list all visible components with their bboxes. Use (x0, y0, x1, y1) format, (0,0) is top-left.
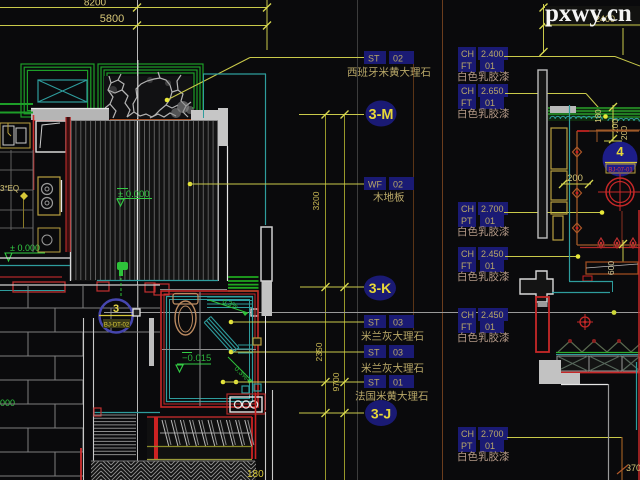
svg-text:01: 01 (485, 441, 495, 451)
svg-text:3-K: 3-K (369, 280, 392, 296)
svg-text:CH: CH (461, 429, 474, 439)
svg-text:03: 03 (393, 348, 403, 358)
svg-text:01: 01 (485, 98, 495, 108)
svg-text:白色乳胶漆: 白色乳胶漆 (457, 225, 510, 238)
svg-text:白色乳胶漆: 白色乳胶漆 (457, 107, 510, 120)
svg-text:PT: PT (461, 216, 473, 226)
svg-text:法国米黄大理石: 法国米黄大理石 (355, 390, 429, 403)
svg-text:3*EQ: 3*EQ (0, 184, 19, 193)
svg-text:ST: ST (368, 54, 380, 64)
svg-text:2.400: 2.400 (481, 49, 504, 59)
svg-text:000: 000 (0, 398, 15, 408)
svg-text:FT: FT (461, 322, 472, 332)
svg-text:CH: CH (461, 249, 474, 259)
svg-text:01: 01 (485, 322, 495, 332)
svg-text:西班牙米黄大理石: 西班牙米黄大理石 (347, 66, 431, 79)
svg-text:2.450: 2.450 (481, 310, 504, 320)
svg-text:370: 370 (626, 463, 640, 473)
svg-text:CH: CH (461, 49, 474, 59)
svg-text:02: 02 (393, 180, 403, 190)
svg-text:CH: CH (461, 310, 474, 320)
svg-text:3200: 3200 (311, 191, 321, 210)
svg-text:ST: ST (368, 348, 380, 358)
svg-text:3: 3 (113, 303, 119, 315)
svg-text:200: 200 (619, 126, 629, 140)
svg-text:白色乳胶漆: 白色乳胶漆 (457, 70, 510, 83)
svg-text:BJ-DT-02: BJ-DT-02 (104, 323, 130, 329)
svg-text:9700: 9700 (331, 372, 341, 391)
svg-text:02: 02 (393, 54, 403, 64)
svg-text:CH: CH (461, 86, 474, 96)
svg-text:01: 01 (485, 216, 495, 226)
svg-text:600: 600 (606, 261, 616, 275)
svg-text:5800: 5800 (100, 13, 124, 25)
svg-text:PT: PT (461, 441, 473, 451)
svg-text:米兰灰大理石: 米兰灰大理石 (361, 362, 424, 375)
svg-text:2.700: 2.700 (481, 204, 504, 214)
svg-text:03: 03 (393, 318, 403, 328)
svg-text:3-J: 3-J (371, 406, 391, 422)
svg-text:180: 180 (247, 469, 264, 480)
svg-text:200: 200 (567, 173, 583, 184)
svg-text:01: 01 (485, 261, 495, 271)
svg-text:ST: ST (368, 378, 380, 388)
svg-text:3-M: 3-M (369, 107, 394, 123)
svg-text:FT: FT (461, 261, 472, 271)
svg-text:木地板: 木地板 (373, 191, 405, 204)
svg-text:4: 4 (616, 144, 624, 159)
svg-text:2350: 2350 (314, 342, 324, 361)
svg-text:米兰灰大理石: 米兰灰大理石 (361, 330, 424, 343)
svg-text:FT: FT (461, 61, 472, 71)
svg-text:白色乳胶漆: 白色乳胶漆 (457, 270, 510, 283)
svg-text:± 0.000: ± 0.000 (10, 243, 40, 253)
svg-text:白色乳胶漆: 白色乳胶漆 (457, 450, 510, 463)
svg-text:2.450: 2.450 (481, 249, 504, 259)
svg-text:CH: CH (461, 204, 474, 214)
svg-text:WF: WF (368, 180, 382, 190)
svg-text:ST: ST (368, 318, 380, 328)
svg-text:2.650: 2.650 (481, 86, 504, 96)
svg-text:01: 01 (393, 378, 403, 388)
svg-text:pxwy.cn: pxwy.cn (545, 0, 632, 27)
svg-text:01: 01 (485, 61, 495, 71)
svg-text:FT: FT (461, 98, 472, 108)
svg-text:−0.015: −0.015 (182, 353, 211, 364)
svg-text:BJ-07-01: BJ-07-01 (608, 168, 633, 174)
svg-text:2.700: 2.700 (481, 429, 504, 439)
svg-text:180: 180 (594, 109, 603, 123)
svg-text:白色乳胶漆: 白色乳胶漆 (457, 331, 510, 344)
